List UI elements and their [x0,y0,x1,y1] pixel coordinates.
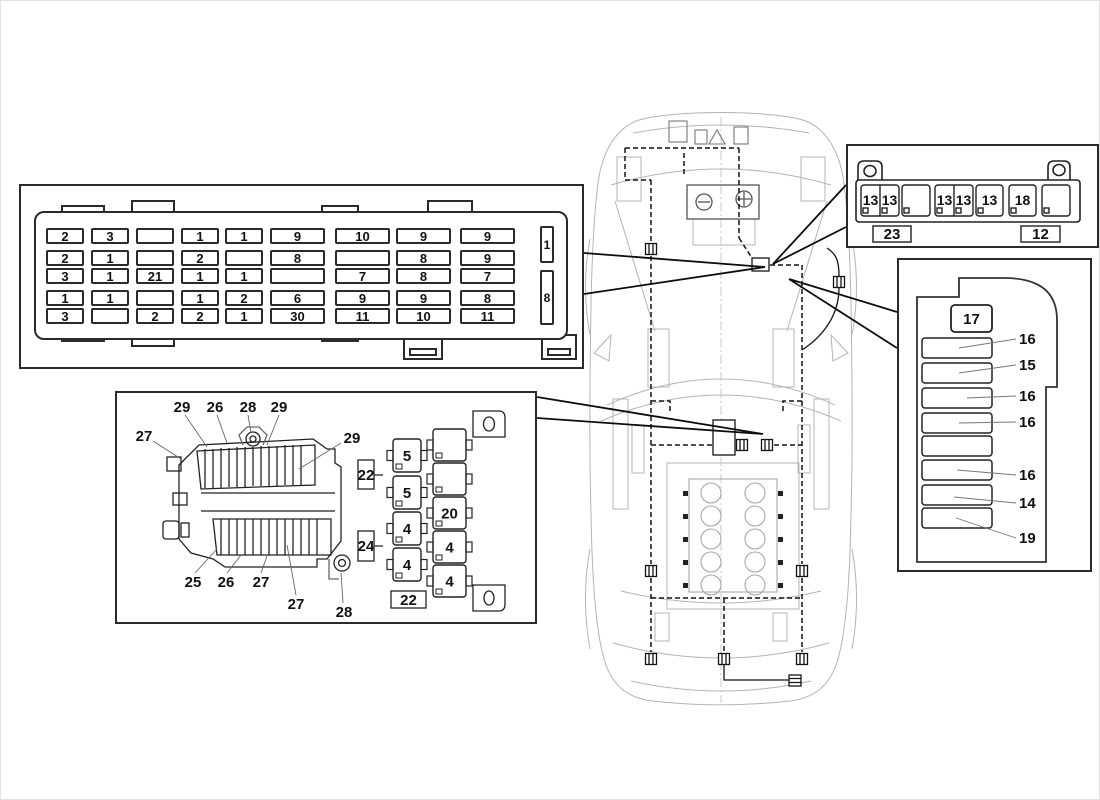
slot-labels: 16 15 16 16 16 14 19 [1019,331,1036,547]
label-23: 23 [884,226,901,243]
fuse-cell: 2 [136,308,174,324]
relay-carrier-panel: 27 29 26 28 29 29 25 26 27 27 28 5544204… [115,391,537,624]
fuse-cell: 8 [270,250,325,266]
relay-cell-label: 4 [445,540,454,557]
fuse-slot [922,436,992,456]
mount-hole-icon [864,166,876,177]
fuse-cell: 1 [91,250,129,266]
label-13: 13 [882,192,898,208]
strip-bottom-labels: 23 12 [873,226,1060,243]
label-29: 29 [344,430,361,447]
fuse-side-cell: 1 [540,226,554,263]
fuse-cell: 10 [396,308,451,324]
panel-housing-outline [917,278,1057,562]
leader-side-fuse-panel [789,279,897,348]
fuse-cell [91,308,129,324]
fuse-cell [136,250,174,266]
fuse-cell: 11 [335,308,390,324]
relay-carrier-outline [163,427,350,579]
relay-cell [427,429,472,461]
label-15: 15 [1019,357,1036,374]
label-27: 27 [136,428,153,445]
label-28: 28 [336,604,353,621]
label-13: 13 [956,192,972,208]
label-16: 16 [1019,414,1036,431]
fuse-cell [136,228,174,244]
warning-triangle-icon [709,130,725,144]
fuse-cell: 1 [181,228,219,244]
label-25: 25 [185,574,202,591]
fuse-cell: 3 [91,228,129,244]
fuse-cell: 8 [396,250,451,266]
interior-fuse-panel: 17 16 15 16 16 16 14 19 [897,258,1092,572]
relay-cell-label: 5 [403,485,411,502]
fuse-cell [225,250,263,266]
fuse-cell: 7 [460,268,515,284]
fuse-cell: 9 [270,228,325,244]
fuse-cell: 2 [181,250,219,266]
label-27: 27 [253,574,270,591]
fuse-cell: 3 [46,268,84,284]
connector-strip-drawing: 13 13 13 13 13 18 23 12 [848,146,1097,246]
harness-connectors [646,244,845,687]
carrier-labels: 27 29 26 28 29 29 25 26 27 27 28 [136,399,361,621]
fuse-cell [136,290,174,306]
fuse-cell: 7 [335,268,390,284]
fuse-cell: 1 [181,268,219,284]
fuse-cell: 1 [225,268,263,284]
fuse-cell [270,268,325,284]
leader-relay-panel [537,397,763,434]
strip-cell-labels: 13 13 13 13 13 18 [863,192,1031,208]
label-13: 13 [937,192,953,208]
fuse-cell: 21 [136,268,174,284]
fuse-cell: 1 [225,308,263,324]
main-fuse-box-panel: 2311910992128893121117871112699832213011… [19,184,584,369]
interior-fuse-panel-drawing: 17 16 15 16 16 16 14 19 [899,260,1090,570]
label-29: 29 [271,399,288,416]
relay-block-brackets [358,411,505,611]
fuse-cell: 6 [270,290,325,306]
fuse-cell: 9 [335,290,390,306]
leader-main-fuse-box [584,253,765,294]
label-13: 13 [863,192,879,208]
relay-carrier-drawing: 27 29 26 28 29 29 25 26 27 27 28 5544204… [117,393,535,622]
label-14: 14 [1019,495,1036,512]
label-18: 18 [1015,192,1031,208]
fuse-cell: 8 [396,268,451,284]
fuse-side-cell: 8 [540,270,554,325]
rear-connector-strip-panel: 13 13 13 13 13 18 23 12 [846,144,1099,248]
label-28: 28 [240,399,257,416]
fuse-cell: 30 [270,308,325,324]
fuse-cell: 1 [91,290,129,306]
front-components [669,121,748,144]
fuse-slot [922,388,992,408]
fuse-cell: 9 [396,228,451,244]
relay-cell: 4 [427,531,472,563]
label-26: 26 [207,399,224,416]
fuse-cell: 10 [335,228,390,244]
fuse-cell: 3 [46,308,84,324]
solid-wires [724,248,839,680]
relay-cell: 20 [427,497,472,529]
fuse-cell: 2 [46,228,84,244]
fuse-cell: 1 [225,228,263,244]
label-27: 27 [288,596,305,613]
relay-cell: 5 [387,476,427,509]
fuse-slot [922,338,992,358]
relay-cell: 4 [387,548,427,581]
engine-harness-taps [683,491,783,588]
relay-cell-label: 4 [445,574,454,591]
relay-cell [427,463,472,495]
console-component [713,420,735,455]
label-16: 16 [1019,388,1036,405]
relay-cell: 4 [387,512,427,545]
fuse-cell: 9 [396,290,451,306]
fuse-cell: 11 [460,308,515,324]
fuse-slot [922,363,992,383]
fuse-cell: 9 [460,250,515,266]
mount-hole-icon [1053,165,1065,176]
relay-cell-label: 4 [403,557,412,574]
relay-cell: 5 [387,439,427,472]
right-mirror [831,335,848,361]
label-12: 12 [1032,226,1049,243]
fuse-slot [922,485,992,505]
diagram-canvas: 2311910992128893121117871112699832213011… [0,0,1100,800]
label-24: 24 [358,538,375,555]
relay-cell-label: 4 [403,521,412,538]
fuse-cell: 9 [460,228,515,244]
fuse-cell: 2 [46,250,84,266]
label-19: 19 [1019,530,1036,547]
relay-cell: 4 [427,565,472,597]
label-22: 22 [400,592,417,609]
fuse-cell [335,250,390,266]
label-16: 16 [1019,331,1036,348]
left-mirror [594,335,611,361]
label-22: 22 [358,467,375,484]
label-13: 13 [982,192,998,208]
label-29: 29 [174,399,191,416]
label-26: 26 [218,574,235,591]
engine-block [689,479,777,595]
fuse-cell: 8 [460,290,515,306]
label-17: 17 [963,311,980,328]
fuse-cell: 2 [225,290,263,306]
relay-cell-label: 20 [441,506,458,523]
fuse-cell: 2 [181,308,219,324]
fuse-cell: 1 [46,290,84,306]
battery-symbol [687,185,759,219]
relay-cell-label: 5 [403,448,411,465]
fuse-cell: 1 [181,290,219,306]
leader-connector-strip [773,185,846,264]
label-16: 16 [1019,467,1036,484]
relay-block: 55442044 [387,429,472,597]
fuse-grid: 2311910992128893121117871112699832213011… [21,186,582,367]
fuse-cell: 1 [91,268,129,284]
